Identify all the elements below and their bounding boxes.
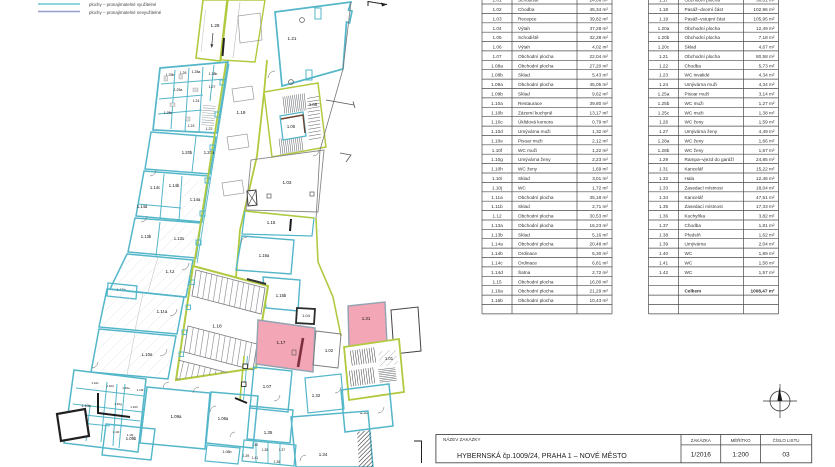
svg-text:WC: WC	[685, 261, 693, 266]
svg-text:5,73 m²: 5,73 m²	[759, 63, 775, 68]
svg-text:1.16b: 1.16b	[276, 293, 287, 298]
svg-text:1.18: 1.18	[659, 7, 669, 12]
svg-text:4,34 m²: 4,34 m²	[759, 82, 775, 87]
svg-text:1.23: 1.23	[659, 73, 669, 78]
svg-text:1.17: 1.17	[659, 0, 669, 3]
svg-text:Obchodní plocha: Obchodní plocha	[518, 54, 554, 59]
svg-text:1.38: 1.38	[262, 448, 268, 452]
svg-text:1.27: 1.27	[209, 85, 216, 89]
svg-text:Sklad: Sklad	[518, 92, 530, 97]
svg-text:1,66 m²: 1,66 m²	[759, 138, 775, 143]
svg-text:1.08b: 1.08b	[491, 73, 503, 78]
svg-text:80,58 m²: 80,58 m²	[756, 54, 775, 59]
svg-text:WC: WC	[685, 270, 693, 275]
svg-text:Obchodní plocha: Obchodní plocha	[518, 63, 554, 68]
svg-text:Umývárna muži: Umývárna muži	[518, 129, 551, 134]
svg-text:1.35: 1.35	[659, 204, 669, 209]
svg-text:1.16b: 1.16b	[491, 298, 503, 303]
svg-text:WC: WC	[518, 185, 526, 190]
svg-text:Obchodní plocha: Obchodní plocha	[518, 214, 554, 219]
svg-text:22,04 m²: 22,04 m²	[590, 54, 609, 59]
svg-text:15,22 m²: 15,22 m²	[756, 167, 775, 172]
svg-text:Restaurace: Restaurace	[518, 101, 542, 106]
svg-text:1.10a: 1.10a	[491, 101, 503, 106]
svg-text:1.11b: 1.11b	[491, 204, 503, 209]
svg-text:1.36: 1.36	[659, 214, 669, 219]
svg-text:1.10g: 1.10g	[491, 157, 503, 162]
svg-text:Celkem: Celkem	[685, 289, 702, 294]
svg-text:1.28a: 1.28a	[192, 70, 201, 74]
svg-text:1.24: 1.24	[659, 82, 669, 87]
svg-text:1,72 m²: 1,72 m²	[592, 185, 608, 190]
svg-text:1.32: 1.32	[659, 176, 669, 181]
svg-text:WC muži: WC muži	[685, 110, 704, 115]
svg-text:1.10g: 1.10g	[114, 402, 122, 406]
svg-text:1.34: 1.34	[659, 195, 669, 200]
svg-text:1.15: 1.15	[267, 220, 276, 225]
svg-text:35,18 m²: 35,18 m²	[590, 195, 609, 200]
svg-text:1.15: 1.15	[492, 279, 502, 284]
svg-text:1.21: 1.21	[659, 54, 669, 59]
svg-text:Obchodní plocha: Obchodní plocha	[518, 279, 554, 284]
svg-text:1.10b: 1.10b	[81, 404, 91, 408]
svg-text:WC ženy: WC ženy	[685, 138, 705, 143]
svg-text:1.14a: 1.14a	[491, 242, 503, 247]
svg-text:3,01 m²: 3,01 m²	[592, 176, 608, 181]
svg-text:WC ženy: WC ženy	[685, 148, 705, 153]
svg-text:1008,47 m²: 1008,47 m²	[751, 289, 775, 294]
svg-text:1.20a: 1.20a	[658, 26, 670, 31]
svg-text:1,58 m²: 1,58 m²	[759, 261, 775, 266]
svg-text:1.13b: 1.13b	[141, 234, 152, 239]
svg-text:1/2016: 1/2016	[691, 452, 712, 459]
svg-text:2,72 m²: 2,72 m²	[592, 270, 608, 275]
svg-text:1.01: 1.01	[385, 356, 394, 361]
svg-text:1.23: 1.23	[188, 124, 195, 128]
svg-text:1.06: 1.06	[492, 45, 502, 50]
svg-text:1.25a: 1.25a	[174, 88, 183, 92]
svg-text:1.12: 1.12	[492, 214, 502, 219]
svg-text:1.10h: 1.10h	[130, 405, 138, 409]
svg-text:1.14d: 1.14d	[137, 204, 148, 209]
svg-text:1.10c: 1.10c	[491, 120, 503, 125]
svg-text:Obchodní plocha: Obchodní plocha	[685, 54, 721, 59]
svg-text:1.39: 1.39	[243, 454, 249, 458]
svg-text:1.03: 1.03	[283, 180, 292, 185]
svg-text:Pasáž–vstupní část: Pasáž–vstupní část	[685, 16, 726, 21]
svg-text:1.02: 1.02	[492, 7, 502, 12]
svg-text:1.10b: 1.10b	[491, 110, 503, 115]
svg-text:Zázemí kuchyně: Zázemí kuchyně	[518, 110, 553, 115]
svg-text:39,82 m²: 39,82 m²	[590, 16, 609, 21]
svg-text:1.10d: 1.10d	[106, 384, 114, 388]
svg-text:Obchodní plocha: Obchodní plocha	[518, 289, 554, 294]
svg-text:1.10j: 1.10j	[492, 185, 502, 190]
svg-text:1.05: 1.05	[309, 102, 318, 107]
svg-text:Umývárna ženy: Umývárna ženy	[518, 157, 551, 162]
svg-text:6,81 m²: 6,81 m²	[592, 261, 608, 266]
svg-text:1,27 m²: 1,27 m²	[759, 101, 775, 106]
svg-text:1.28b: 1.28b	[209, 72, 218, 76]
svg-text:1:200: 1:200	[732, 452, 749, 459]
svg-text:1.41: 1.41	[252, 456, 258, 460]
svg-text:1.29: 1.29	[659, 157, 669, 162]
svg-text:1.20b: 1.20b	[658, 35, 670, 40]
svg-text:1.24: 1.24	[193, 99, 200, 103]
svg-text:1.16a: 1.16a	[259, 253, 270, 258]
svg-text:WC ženy: WC ženy	[518, 167, 538, 172]
svg-text:1.28b: 1.28b	[658, 148, 670, 153]
svg-text:1.09a: 1.09a	[491, 82, 503, 87]
svg-text:18,04 m²: 18,04 m²	[756, 185, 775, 190]
svg-text:1.13a: 1.13a	[491, 223, 503, 228]
svg-text:1.04: 1.04	[302, 313, 311, 318]
svg-text:1.14b: 1.14b	[169, 183, 180, 188]
svg-text:Recepce: Recepce	[518, 16, 537, 21]
svg-text:WC muži: WC muži	[518, 148, 537, 153]
svg-text:17,33 m²: 17,33 m²	[756, 204, 775, 209]
svg-text:1.34: 1.34	[319, 452, 328, 457]
svg-text:Obchodní plocha: Obchodní plocha	[685, 26, 721, 31]
svg-text:Zasedací místnost: Zasedací místnost	[685, 185, 724, 190]
svg-text:2,04 m²: 2,04 m²	[759, 242, 775, 247]
svg-text:Rampa–vjezd do garáží: Rampa–vjezd do garáží	[685, 157, 735, 162]
svg-text:1.10d: 1.10d	[491, 129, 503, 134]
svg-text:1.07: 1.07	[492, 54, 502, 59]
svg-text:1.08a: 1.08a	[491, 63, 503, 68]
svg-text:12,49 m²: 12,49 m²	[756, 26, 775, 31]
svg-text:MĚŘÍTKO: MĚŘÍTKO	[731, 438, 752, 443]
svg-text:4,67 m²: 4,67 m²	[759, 45, 775, 50]
svg-text:WC: WC	[685, 251, 693, 256]
svg-text:2,71 m²: 2,71 m²	[592, 204, 608, 209]
svg-text:1.20b: 1.20b	[182, 150, 193, 155]
svg-text:1,57 m²: 1,57 m²	[759, 270, 775, 275]
svg-text:Schodiště: Schodiště	[518, 0, 539, 3]
svg-text:1.01: 1.01	[492, 0, 502, 3]
svg-text:Obchodní plocha: Obchodní plocha	[518, 82, 554, 87]
svg-text:Sklad: Sklad	[518, 204, 530, 209]
svg-text:1.37: 1.37	[659, 223, 669, 228]
svg-text:1.37: 1.37	[279, 448, 285, 452]
svg-text:16,23 m²: 16,23 m²	[590, 223, 609, 228]
svg-text:21,29 m²: 21,29 m²	[590, 289, 609, 294]
svg-text:Sklad: Sklad	[518, 73, 530, 78]
svg-text:1.17: 1.17	[277, 340, 286, 345]
svg-text:Úklidová komora: Úklidová komora	[518, 119, 553, 125]
svg-text:1.31: 1.31	[659, 167, 669, 172]
svg-text:1.31: 1.31	[362, 316, 371, 321]
svg-text:Kancelář: Kancelář	[685, 195, 704, 200]
svg-text:1.18: 1.18	[212, 324, 222, 330]
svg-text:Ordinace: Ordinace	[518, 261, 537, 266]
svg-text:3,14 m²: 3,14 m²	[759, 92, 775, 97]
svg-text:5,16 m²: 5,16 m²	[592, 232, 608, 237]
svg-text:1,59 m²: 1,59 m²	[759, 120, 775, 125]
svg-text:1.09b: 1.09b	[491, 92, 503, 97]
svg-text:WC ženy: WC ženy	[685, 120, 705, 125]
svg-text:plochy – pronajímatelné využit: plochy – pronajímatelné využitelné	[89, 2, 157, 7]
svg-text:45,05 m²: 45,05 m²	[590, 82, 609, 87]
svg-text:Pasáž–dvorní část: Pasáž–dvorní část	[685, 7, 724, 12]
svg-text:1.10f: 1.10f	[137, 388, 144, 392]
svg-text:0,79 m²: 0,79 m²	[592, 120, 608, 125]
svg-text:10,43 m²: 10,43 m²	[590, 298, 609, 303]
svg-text:1.10c: 1.10c	[91, 381, 99, 385]
svg-text:Kuchyňka: Kuchyňka	[685, 214, 706, 219]
svg-text:1.20c: 1.20c	[658, 45, 670, 50]
svg-text:Chodba: Chodba	[685, 223, 702, 228]
svg-text:1.19: 1.19	[659, 16, 669, 21]
svg-text:1,32 m²: 1,32 m²	[592, 129, 608, 134]
svg-text:1.06: 1.06	[287, 124, 296, 129]
svg-text:Sklad: Sklad	[518, 232, 530, 237]
svg-text:1,89 m²: 1,89 m²	[759, 251, 775, 256]
svg-text:1.09b: 1.09b	[126, 436, 137, 441]
svg-text:Pisoar muži: Pisoar muži	[685, 92, 710, 97]
svg-text:03: 03	[782, 452, 790, 459]
svg-text:1.33: 1.33	[659, 185, 669, 190]
svg-text:1.27: 1.27	[659, 129, 669, 134]
svg-text:4,49 m²: 4,49 m²	[759, 129, 775, 134]
svg-text:Šatna: Šatna	[518, 269, 531, 275]
svg-text:1.04: 1.04	[492, 26, 502, 31]
svg-text:1.10e: 1.10e	[491, 138, 503, 143]
svg-text:1.13b: 1.13b	[491, 232, 503, 237]
svg-text:1.10i: 1.10i	[492, 176, 502, 181]
svg-text:5,43 m²: 5,43 m²	[592, 73, 608, 78]
svg-text:7,18 m²: 7,18 m²	[759, 35, 775, 40]
svg-text:9,62 m²: 9,62 m²	[592, 92, 608, 97]
svg-text:Umývárna ženy: Umývárna ženy	[685, 129, 718, 134]
svg-text:1.32: 1.32	[312, 393, 321, 398]
svg-text:1.16a: 1.16a	[491, 289, 503, 294]
svg-text:1,38 m²: 1,38 m²	[759, 110, 775, 115]
svg-text:1.25a: 1.25a	[658, 92, 670, 97]
svg-text:Sklad: Sklad	[518, 176, 530, 181]
svg-text:Výtah: Výtah	[518, 45, 530, 50]
svg-text:Zasedací místnost: Zasedací místnost	[685, 204, 724, 209]
svg-text:Kancelář: Kancelář	[685, 167, 704, 172]
svg-text:24,06 m²: 24,06 m²	[590, 0, 609, 3]
svg-text:1.14c: 1.14c	[150, 185, 160, 190]
svg-text:39,80 m²: 39,80 m²	[590, 101, 609, 106]
svg-text:Předsíň: Předsíň	[685, 232, 702, 237]
svg-text:30,53 m²: 30,53 m²	[590, 214, 609, 219]
svg-text:Ordinace: Ordinace	[518, 251, 537, 256]
svg-text:1.22: 1.22	[206, 127, 213, 131]
svg-text:1.26: 1.26	[659, 120, 669, 125]
svg-text:1.39: 1.39	[659, 242, 669, 247]
svg-text:105,95 m²: 105,95 m²	[753, 16, 775, 21]
svg-text:1.28a: 1.28a	[658, 138, 670, 143]
svg-text:24,85 m²: 24,85 m²	[756, 157, 775, 162]
svg-text:1.19: 1.19	[237, 110, 246, 115]
svg-text:20,48 m²: 20,48 m²	[590, 242, 609, 247]
svg-text:Chodba: Chodba	[685, 63, 702, 68]
svg-text:1.21: 1.21	[288, 36, 297, 41]
svg-text:Chodba: Chodba	[518, 7, 535, 12]
svg-text:Obchodní plocha: Obchodní plocha	[518, 298, 554, 303]
svg-text:Schodiště: Schodiště	[518, 35, 539, 40]
svg-text:Obchodní plocha: Obchodní plocha	[518, 195, 554, 200]
svg-text:1.36: 1.36	[274, 460, 280, 464]
svg-text:12,46 m²: 12,46 m²	[756, 176, 775, 181]
svg-text:32,28 m²: 32,28 m²	[590, 35, 609, 40]
svg-text:13,17 m²: 13,17 m²	[590, 110, 609, 115]
svg-text:4,02 m²: 4,02 m²	[592, 45, 608, 50]
svg-text:1.13a: 1.13a	[174, 236, 185, 241]
svg-text:16,00 m²: 16,00 m²	[590, 279, 609, 284]
svg-text:1.08b: 1.08b	[223, 450, 232, 454]
svg-text:ČÍSLO LISTU: ČÍSLO LISTU	[773, 438, 800, 443]
svg-text:WC invalidé: WC invalidé	[685, 73, 710, 78]
svg-text:1.22: 1.22	[659, 63, 669, 68]
svg-text:1.03: 1.03	[492, 16, 502, 21]
svg-text:HYBERNSKÁ čp.1009/24, PRAHA 1: HYBERNSKÁ čp.1009/24, PRAHA 1 – NOVÉ MĚS…	[457, 451, 627, 460]
svg-text:1.29: 1.29	[211, 23, 220, 28]
svg-text:2,12 m²: 2,12 m²	[592, 138, 608, 143]
svg-text:1.05: 1.05	[492, 35, 502, 40]
svg-text:5,30 m²: 5,30 m²	[592, 251, 608, 256]
svg-text:1.20a: 1.20a	[204, 150, 215, 155]
svg-text:37,28 m²: 37,28 m²	[590, 26, 609, 31]
svg-text:1.41: 1.41	[659, 261, 669, 266]
svg-text:1.35: 1.35	[264, 430, 273, 435]
svg-text:1.10i: 1.10i	[113, 430, 120, 434]
svg-text:1.09a: 1.09a	[171, 414, 183, 419]
svg-text:Obchodní plocha: Obchodní plocha	[518, 242, 554, 247]
svg-text:Obchodní plocha: Obchodní plocha	[518, 223, 554, 228]
svg-text:1.10f: 1.10f	[492, 148, 503, 153]
svg-text:1.42: 1.42	[659, 270, 669, 275]
svg-text:1,22 m²: 1,22 m²	[592, 148, 608, 153]
svg-text:Pisoar muži: Pisoar muži	[518, 138, 543, 143]
svg-text:2,23 m²: 2,23 m²	[592, 157, 608, 162]
svg-text:Sklad: Sklad	[685, 45, 697, 50]
svg-text:1.14d: 1.14d	[491, 270, 503, 275]
svg-text:Obchodní plocha: Obchodní plocha	[685, 35, 721, 40]
svg-text:27,20 m²: 27,20 m²	[590, 63, 609, 68]
svg-text:Hala: Hala	[685, 176, 695, 181]
svg-text:1.40: 1.40	[659, 251, 669, 256]
svg-text:3,82 m²: 3,82 m²	[759, 214, 775, 219]
svg-text:ZAKÁZKA: ZAKÁZKA	[691, 438, 711, 443]
svg-text:47,51 m²: 47,51 m²	[756, 195, 775, 200]
svg-text:plochy – pronajímatelné nevyuž: plochy – pronajímatelné nevyužitelné	[89, 10, 162, 15]
svg-text:1.14b: 1.14b	[491, 251, 503, 256]
svg-text:1.38: 1.38	[659, 232, 669, 237]
svg-text:1.08a: 1.08a	[218, 416, 229, 421]
svg-text:1.10h: 1.10h	[491, 167, 503, 172]
svg-text:Umývárna muži: Umývárna muži	[685, 82, 718, 87]
svg-text:Umývárna: Umývárna	[685, 242, 707, 247]
svg-text:Výtah: Výtah	[518, 26, 530, 31]
svg-text:1,67 m²: 1,67 m²	[759, 148, 775, 153]
svg-text:30,01 m²: 30,01 m²	[756, 0, 775, 3]
svg-text:WC muži: WC muži	[685, 101, 704, 106]
svg-text:NÁZEV ZAKÁZKY: NÁZEV ZAKÁZKY	[443, 436, 481, 442]
svg-text:1.14c: 1.14c	[491, 261, 503, 266]
svg-text:1.02: 1.02	[325, 348, 334, 353]
svg-text:1.25c: 1.25c	[658, 110, 670, 115]
svg-text:4,34 m²: 4,34 m²	[759, 73, 775, 78]
svg-text:1.10e: 1.10e	[122, 386, 130, 390]
svg-text:102,96 m²: 102,96 m²	[753, 7, 775, 12]
svg-text:1.25c: 1.25c	[164, 111, 173, 115]
svg-text:1.11a: 1.11a	[491, 195, 503, 200]
svg-text:1.07: 1.07	[263, 384, 272, 389]
svg-text:Obchodní plocha: Obchodní plocha	[685, 0, 721, 3]
svg-text:1,69 m²: 1,69 m²	[592, 167, 608, 172]
svg-text:1.25b: 1.25b	[658, 101, 670, 106]
svg-text:1,81 m²: 1,81 m²	[759, 223, 775, 228]
svg-text:45,34 m²: 45,34 m²	[590, 7, 609, 12]
svg-text:1,62 m²: 1,62 m²	[759, 232, 775, 237]
